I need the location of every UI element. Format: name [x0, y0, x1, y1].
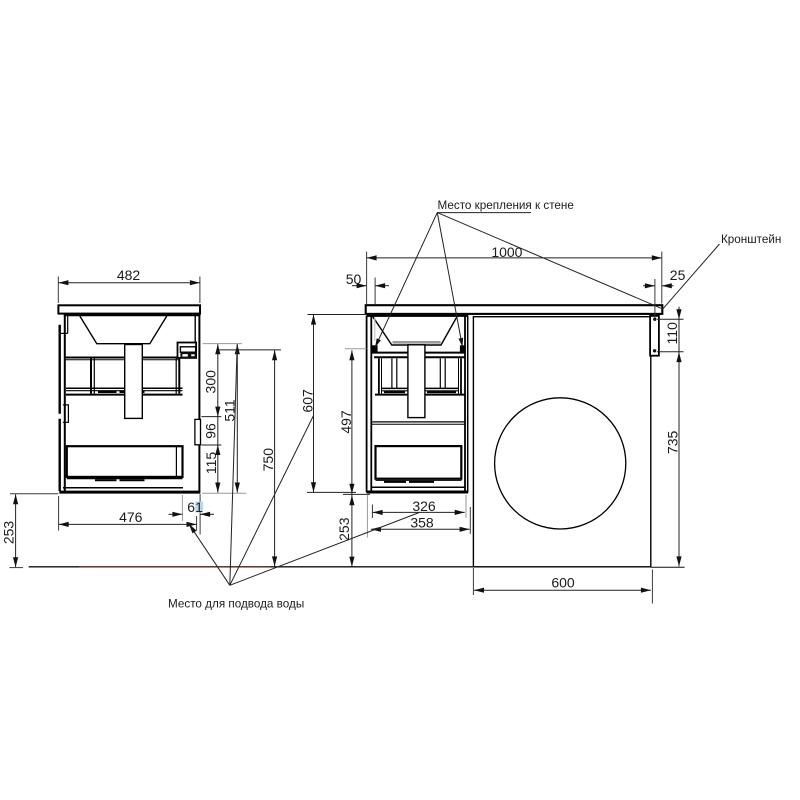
svg-text:1000: 1000 [491, 244, 522, 260]
svg-text:253: 253 [1, 521, 17, 545]
svg-text:358: 358 [410, 514, 434, 530]
svg-text:300: 300 [202, 370, 218, 394]
svg-text:607: 607 [299, 389, 315, 413]
svg-text:61: 61 [187, 499, 203, 515]
svg-text:600: 600 [551, 575, 575, 591]
svg-text:50: 50 [346, 271, 362, 287]
svg-text:476: 476 [119, 509, 143, 525]
svg-text:750: 750 [260, 448, 276, 472]
svg-text:25: 25 [670, 267, 686, 283]
svg-text:735: 735 [664, 431, 680, 455]
svg-text:253: 253 [336, 517, 352, 541]
svg-text:Место для подвода воды: Место для подвода воды [168, 598, 304, 611]
svg-text:Место крепления к стене: Место крепления к стене [438, 199, 574, 212]
svg-text:326: 326 [412, 498, 436, 514]
svg-text:110: 110 [664, 322, 680, 345]
svg-text:Кронштейн: Кронштейн [721, 233, 781, 246]
svg-text:115: 115 [203, 452, 219, 475]
svg-text:497: 497 [338, 410, 354, 434]
svg-text:482: 482 [117, 267, 141, 283]
svg-text:96: 96 [203, 423, 219, 439]
